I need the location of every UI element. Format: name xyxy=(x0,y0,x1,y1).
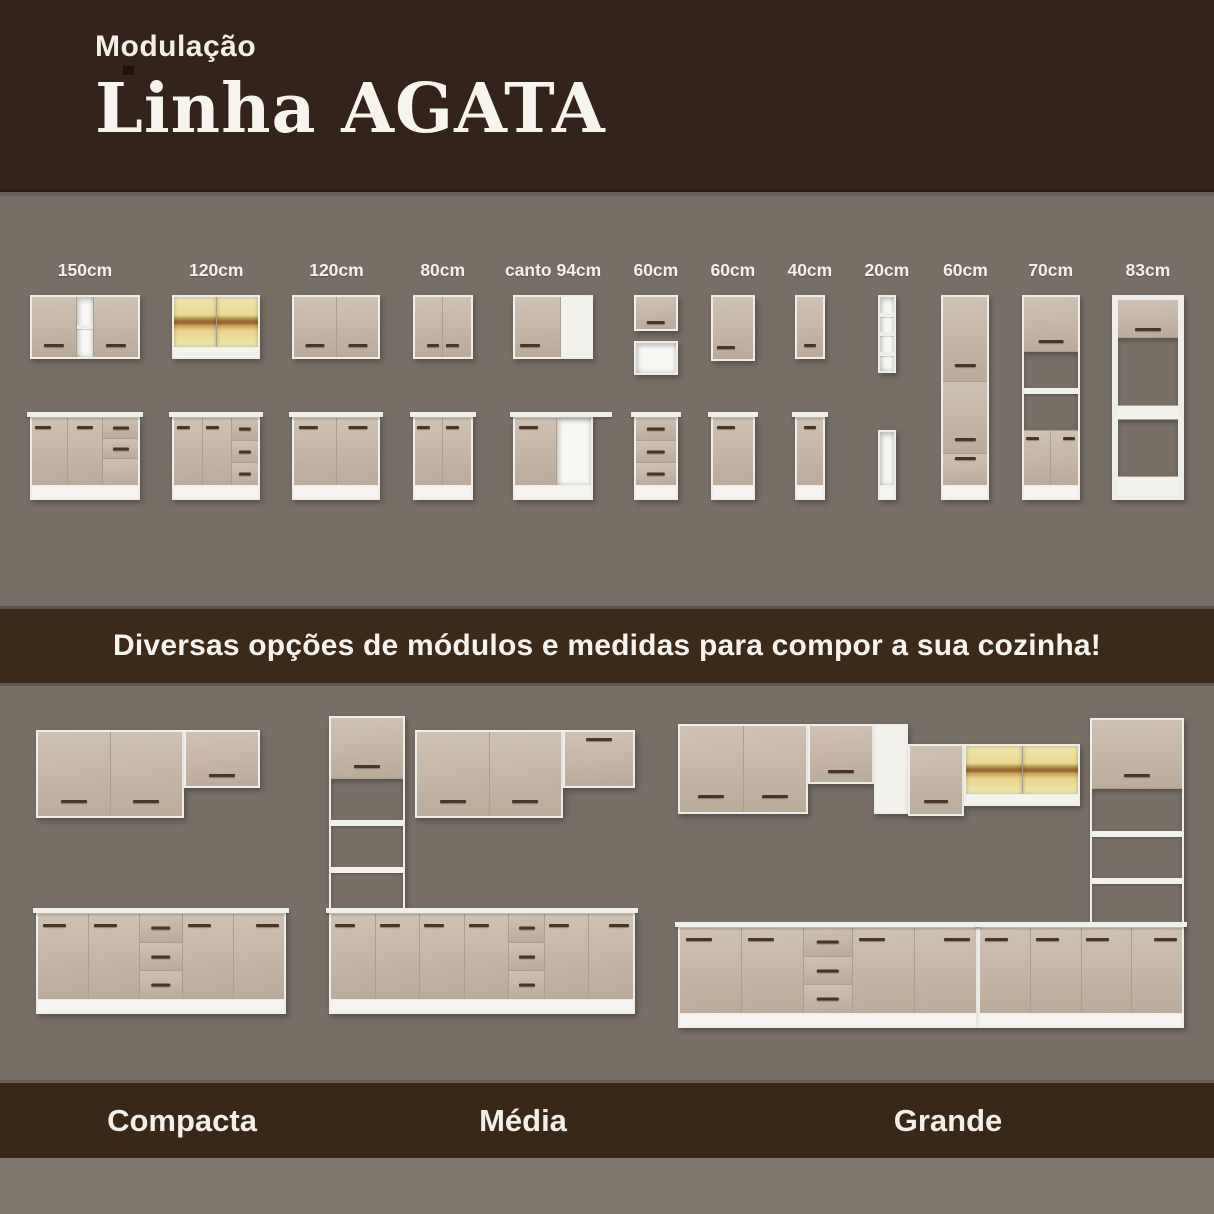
module-size-label: 20cm xyxy=(864,260,909,281)
door xyxy=(234,914,284,999)
cabinet-column xyxy=(337,418,379,485)
cabinet-carcass xyxy=(38,732,182,816)
cabinet-carcass xyxy=(880,432,894,485)
cabinet xyxy=(329,912,635,1014)
cabinet-column xyxy=(797,418,823,485)
drawer-handle xyxy=(955,457,975,460)
module-drawing xyxy=(172,295,260,500)
cabinet-carcass xyxy=(515,418,591,485)
cabinet-column xyxy=(880,432,894,485)
module-60cm-drawers: 60cm xyxy=(633,260,678,500)
module-120cm-glass: 120cm xyxy=(172,260,260,500)
cabinet xyxy=(1112,295,1184,500)
countertop xyxy=(410,412,476,417)
door-handle xyxy=(944,938,970,941)
cabinet-carcass xyxy=(876,726,906,812)
module-drawing xyxy=(634,295,678,500)
door xyxy=(515,297,560,357)
drawer-handle xyxy=(239,427,251,430)
countertop xyxy=(510,412,612,417)
door-handle xyxy=(61,800,87,803)
module-40cm: 40cm xyxy=(787,260,832,500)
door-handle xyxy=(609,924,629,927)
door-pair xyxy=(1024,431,1078,485)
cabinet-column xyxy=(174,418,202,485)
door-handle xyxy=(417,426,430,429)
shelf-line xyxy=(1024,388,1078,394)
cabinet-column xyxy=(94,297,138,357)
drawer-handle xyxy=(239,450,251,453)
door xyxy=(910,746,962,814)
module-drawing xyxy=(513,295,593,500)
cabinet-column xyxy=(636,297,676,329)
cabinet-column xyxy=(174,297,216,347)
module-drawing xyxy=(292,295,380,500)
door xyxy=(1031,928,1081,1013)
drawer-handle xyxy=(151,955,171,958)
cabinet-carcass xyxy=(943,297,987,485)
open-shelf xyxy=(77,297,94,357)
cabinet xyxy=(808,724,874,784)
door xyxy=(797,418,823,485)
plinth xyxy=(1024,486,1078,498)
cabinet-carcass xyxy=(636,343,676,373)
cabinet-column xyxy=(589,914,633,999)
countertop xyxy=(675,922,981,927)
door-handle xyxy=(1036,938,1059,941)
drawer xyxy=(103,418,138,438)
kitchen-label-compacta: Compacta xyxy=(107,1103,257,1139)
cabinet-carcass xyxy=(186,732,258,786)
door xyxy=(915,928,976,1013)
cabinet-column xyxy=(32,297,76,357)
cabinet xyxy=(978,926,1184,1028)
kitchen-label-grande: Grande xyxy=(894,1103,1003,1139)
door xyxy=(680,726,743,812)
door-handle xyxy=(43,924,66,927)
door xyxy=(38,732,110,816)
cabinet xyxy=(513,295,593,359)
module-size-label: 60cm xyxy=(943,260,988,281)
door-handle xyxy=(647,321,665,324)
door xyxy=(186,732,258,786)
door xyxy=(294,297,336,357)
cabinet-column xyxy=(294,418,336,485)
module-60cm: 60cm xyxy=(710,260,755,500)
door xyxy=(337,297,379,357)
door xyxy=(415,418,443,485)
door-handle xyxy=(748,938,774,941)
cabinet xyxy=(711,416,755,500)
door-handle xyxy=(206,426,219,429)
drawer xyxy=(232,463,258,485)
door-handle xyxy=(256,924,279,927)
cabinet-column xyxy=(1132,928,1182,1013)
door xyxy=(742,928,803,1013)
door-handle xyxy=(177,426,190,429)
module-drawing xyxy=(711,295,755,500)
module-size-label: 60cm xyxy=(710,260,755,281)
door xyxy=(1051,431,1078,485)
cabinet-column xyxy=(443,418,471,485)
catalog-page: Modulação Linha AGATA 150cm 120cm 120cm … xyxy=(0,0,1214,1214)
module-canto-94cm: canto 94cm xyxy=(505,260,601,500)
cabinet-column xyxy=(294,297,336,357)
door xyxy=(32,418,67,485)
plinth xyxy=(294,486,378,498)
cabinet-carcass xyxy=(515,297,591,357)
drawer-handle xyxy=(817,940,839,943)
door xyxy=(1132,928,1182,1013)
plinth xyxy=(174,486,258,498)
cabinet xyxy=(413,416,473,500)
drawer xyxy=(140,914,182,942)
kitchen-grande xyxy=(664,700,1198,1030)
door xyxy=(174,418,202,485)
drawer xyxy=(509,914,544,942)
door-handle xyxy=(440,800,466,803)
cabinet xyxy=(878,430,896,500)
door-handle xyxy=(209,774,235,777)
plinth xyxy=(943,486,987,498)
door-handle xyxy=(804,426,816,429)
door-handle xyxy=(586,738,612,741)
cabinet-column xyxy=(636,418,676,485)
door-handle xyxy=(955,438,975,441)
cabinet xyxy=(36,730,184,818)
cabinet-carcass xyxy=(38,914,284,999)
door-handle xyxy=(424,924,444,927)
open-niche xyxy=(331,779,403,914)
door-handle xyxy=(106,344,126,347)
drawer-handle xyxy=(151,926,171,929)
drawer xyxy=(140,943,182,971)
door-handle xyxy=(828,770,854,773)
countertop xyxy=(169,412,263,417)
door xyxy=(94,297,138,357)
shelf-line xyxy=(880,352,894,356)
drawer-handle xyxy=(239,473,251,476)
drawer-handle xyxy=(817,969,839,972)
door xyxy=(943,297,987,381)
door xyxy=(1024,297,1078,351)
shelf-line xyxy=(880,313,894,317)
door-handle xyxy=(133,800,159,803)
drawer-handle xyxy=(113,447,129,450)
cabinet-column xyxy=(32,418,67,485)
door xyxy=(417,732,489,816)
door xyxy=(465,914,509,999)
module-drawing xyxy=(30,295,140,500)
module-70cm-paneleiro: 70cm xyxy=(1022,260,1080,500)
door-handle xyxy=(1038,340,1063,343)
door xyxy=(636,297,676,329)
cabinet-column xyxy=(980,928,1030,1013)
open-niche xyxy=(1024,352,1078,429)
cabinet-column xyxy=(331,718,403,914)
kitchen-media xyxy=(315,700,645,1030)
side-panel xyxy=(876,726,906,812)
door xyxy=(853,928,914,1013)
door-handle xyxy=(519,426,538,429)
cabinet xyxy=(413,295,473,359)
kitchen-label-media: Média xyxy=(479,1103,567,1139)
module-size-label: 120cm xyxy=(189,260,244,281)
cabinet-column xyxy=(217,297,259,347)
cabinet-column xyxy=(38,914,88,999)
open-niche xyxy=(1118,338,1178,405)
drawer xyxy=(804,985,853,1013)
module-size-label: canto 94cm xyxy=(505,260,601,281)
door-handle xyxy=(1154,938,1177,941)
modules-row: 150cm 120cm 120cm 80cm canto 94cm 60cm 6… xyxy=(30,260,1184,500)
door-handle xyxy=(698,795,724,798)
module-size-label: 83cm xyxy=(1126,260,1171,281)
module-150cm: 150cm xyxy=(30,260,140,500)
cabinet-column xyxy=(561,297,591,357)
plinth xyxy=(38,1000,284,1012)
plinth xyxy=(880,486,894,498)
shelf-band xyxy=(174,348,258,357)
door xyxy=(810,726,872,782)
cabinet-carcass xyxy=(810,726,872,782)
cabinet-carcass xyxy=(1118,300,1178,495)
side-panel xyxy=(1118,406,1178,420)
shelf-line xyxy=(77,325,94,329)
cabinet xyxy=(329,716,405,916)
door xyxy=(294,418,336,485)
cabinet xyxy=(30,295,140,359)
drawer-handle xyxy=(647,427,665,430)
module-60cm-paneleiro: 60cm xyxy=(941,260,989,500)
door-handle xyxy=(380,924,400,927)
door xyxy=(38,914,88,999)
cabinet-carcass xyxy=(636,297,676,329)
module-drawing xyxy=(1112,295,1184,500)
shelf-line xyxy=(331,820,403,826)
cabinet-column xyxy=(509,914,544,999)
door xyxy=(1092,720,1182,788)
cabinet xyxy=(184,730,260,788)
cabinet-column xyxy=(415,418,443,485)
cabinet-column xyxy=(557,418,591,485)
door xyxy=(490,732,562,816)
cabinet-carcass xyxy=(174,297,258,347)
cabinet-column xyxy=(111,732,183,816)
door xyxy=(337,418,379,485)
cabinet-column xyxy=(880,297,894,371)
cabinet xyxy=(30,416,140,500)
cabinet-column xyxy=(77,297,94,357)
cabinet xyxy=(292,416,380,500)
door-handle xyxy=(77,426,93,429)
cabinet-carcass xyxy=(32,418,138,485)
drawer-handle xyxy=(817,998,839,1001)
drawer xyxy=(509,971,544,999)
modules-section: 150cm 120cm 120cm 80cm canto 94cm 60cm 6… xyxy=(0,192,1214,606)
door-handle xyxy=(859,938,885,941)
open-shelf xyxy=(880,297,894,371)
cabinet-column xyxy=(713,418,753,485)
plinth xyxy=(415,486,471,498)
cabinet xyxy=(634,295,678,331)
shelf-band xyxy=(966,795,1078,804)
side-panel xyxy=(561,297,591,357)
countertop xyxy=(33,908,289,913)
cabinet-column xyxy=(853,928,914,1013)
kitchens-section xyxy=(0,686,1214,1080)
door-handle xyxy=(686,938,712,941)
door-handle xyxy=(1063,437,1075,440)
module-size-label: 80cm xyxy=(420,260,465,281)
cabinet xyxy=(874,724,908,814)
cabinet-column xyxy=(443,297,471,357)
countertop xyxy=(975,922,1187,927)
countertop xyxy=(27,412,143,417)
door xyxy=(331,914,375,999)
cabinet-column xyxy=(376,914,420,999)
module-size-label: 150cm xyxy=(58,260,113,281)
door-handle xyxy=(354,765,380,768)
module-120cm: 120cm xyxy=(292,260,380,500)
drawer-handle xyxy=(113,426,129,429)
open-shelf xyxy=(557,418,591,485)
cabinet xyxy=(1022,295,1080,500)
cabinet-carcass xyxy=(174,418,258,485)
cabinet-carcass xyxy=(713,418,753,485)
door-handle xyxy=(985,938,1008,941)
cabinet-column xyxy=(810,726,872,782)
door-handle xyxy=(1124,774,1150,777)
cabinet-column xyxy=(910,746,962,814)
cabinet-carcass xyxy=(713,297,753,359)
cabinet-column xyxy=(203,418,231,485)
drawer xyxy=(509,943,544,971)
door-handle xyxy=(348,426,367,429)
plinth xyxy=(32,486,138,498)
cabinet-column xyxy=(915,928,976,1013)
door xyxy=(415,297,443,357)
drawer xyxy=(636,463,676,485)
kitchen-compacta xyxy=(16,700,296,1030)
cabinet-column xyxy=(680,726,743,812)
door-handle xyxy=(717,426,735,429)
door-handle xyxy=(924,800,948,803)
drawer xyxy=(804,928,853,956)
cabinet-carcass xyxy=(797,297,823,357)
drawer-handle xyxy=(519,926,535,929)
cabinet-carcass xyxy=(294,418,378,485)
module-size-label: 70cm xyxy=(1028,260,1073,281)
door-handle xyxy=(94,924,117,927)
door xyxy=(744,726,807,812)
cabinet-column xyxy=(186,732,258,786)
drawer-handle xyxy=(151,984,171,987)
plinth xyxy=(713,486,753,498)
door-handle xyxy=(188,924,211,927)
door xyxy=(443,418,471,485)
plinth xyxy=(636,486,676,498)
door xyxy=(420,914,464,999)
countertop xyxy=(708,412,758,417)
cabinet-column xyxy=(943,297,987,485)
module-drawing xyxy=(878,295,896,500)
cabinet xyxy=(878,295,896,373)
door xyxy=(32,297,76,357)
cabinet-column xyxy=(636,343,676,373)
cabinet-carcass xyxy=(797,418,823,485)
plinth xyxy=(680,1014,976,1026)
cabinet-column xyxy=(331,914,375,999)
cabinet xyxy=(711,295,755,361)
drawer xyxy=(636,418,676,440)
cabinet-column xyxy=(68,418,103,485)
open-niche xyxy=(1118,420,1178,475)
cabinet-column xyxy=(38,732,110,816)
cabinet xyxy=(415,730,563,818)
shelf-line xyxy=(331,867,403,873)
door-handle xyxy=(804,344,816,347)
cabinet-carcass xyxy=(680,726,806,812)
drawer-handle xyxy=(519,984,535,987)
cabinet-column xyxy=(415,297,443,357)
drawer-handle xyxy=(519,955,535,958)
cabinet-column xyxy=(417,732,489,816)
cabinet xyxy=(678,926,978,1028)
shelf-line xyxy=(880,332,894,336)
cabinet xyxy=(795,295,825,359)
cabinet-column xyxy=(797,297,823,357)
cabinet-column xyxy=(744,726,807,812)
door xyxy=(713,297,753,359)
cabinet xyxy=(172,295,260,359)
cabinet xyxy=(634,416,678,500)
door-handle xyxy=(44,344,64,347)
cabinet-column xyxy=(742,928,803,1013)
door-handle xyxy=(446,426,459,429)
door-handle xyxy=(348,344,367,347)
door-handle xyxy=(299,426,318,429)
module-20cm: 20cm xyxy=(864,260,909,500)
bottom-strip xyxy=(0,1158,1214,1214)
promo-banner: Diversas opções de módulos e medidas par… xyxy=(0,606,1214,686)
cabinet-column xyxy=(1092,720,1182,926)
door xyxy=(331,718,403,778)
countertop xyxy=(289,412,383,417)
door xyxy=(68,418,103,485)
shelf-line xyxy=(1092,831,1182,837)
cabinet-carcass xyxy=(294,297,378,357)
door xyxy=(1118,300,1178,337)
cabinet xyxy=(908,744,964,816)
cabinet xyxy=(1090,718,1184,928)
drawer xyxy=(232,418,258,440)
cabinet-column xyxy=(140,914,182,999)
header-kicker: Modulação xyxy=(95,30,1214,64)
cabinet-carcass xyxy=(910,746,962,814)
door-handle xyxy=(427,344,440,347)
module-80cm: 80cm xyxy=(413,260,473,500)
countertop xyxy=(326,908,638,913)
cabinet-column xyxy=(876,726,906,812)
door-handle xyxy=(717,346,735,349)
countertop xyxy=(792,412,828,417)
cabinet-column xyxy=(420,914,464,999)
countertop xyxy=(631,412,681,417)
open-niche xyxy=(1092,789,1182,926)
cabinet-column xyxy=(680,928,741,1013)
door-handle xyxy=(512,800,538,803)
